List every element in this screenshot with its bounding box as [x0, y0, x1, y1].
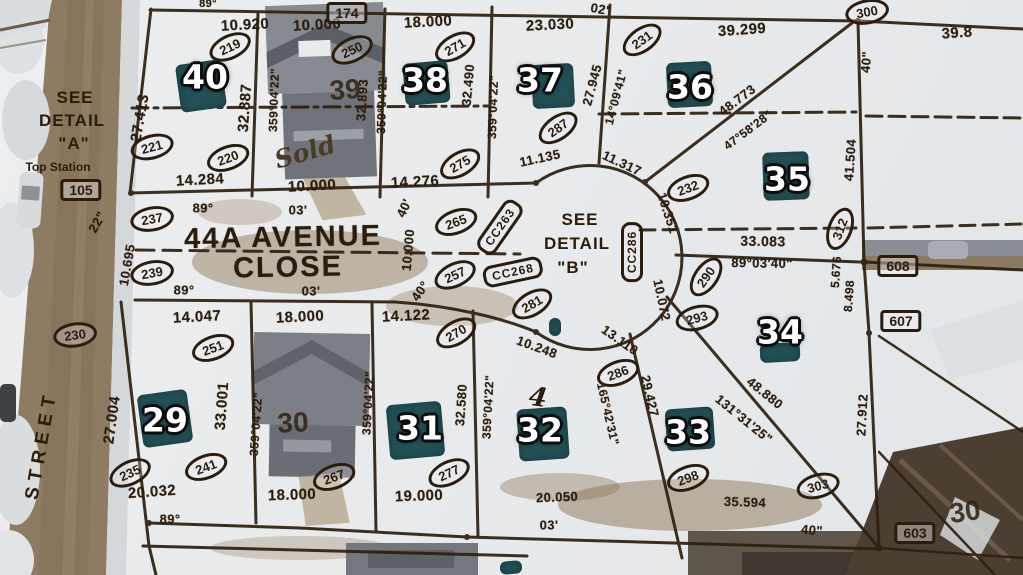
teal-marker-patch — [499, 560, 522, 575]
see-detail-b-line2: DETAIL — [544, 234, 610, 254]
boxed-point-tag: 174 — [326, 2, 367, 24]
boxed-point-tag: 105 — [60, 179, 101, 201]
dimension-label: 40" — [800, 522, 823, 539]
teal-marker-patch — [549, 318, 561, 336]
dimension-label: 359°04'22" — [359, 371, 376, 436]
dimension-label: 89° — [199, 0, 217, 10]
circled-point-tag: 230 — [52, 320, 99, 351]
dimension-label: 33.001 — [212, 381, 232, 430]
lot-number-badge: 35 — [764, 160, 810, 199]
circled-point-tag: 298 — [663, 459, 713, 497]
dimension-label: 23.030 — [525, 15, 574, 35]
dimension-label: 359°04'22" — [247, 392, 265, 457]
dimension-label: 03' — [302, 284, 321, 299]
top-station-note: Top Station — [25, 160, 90, 174]
dimension-label: 8.498 — [841, 280, 857, 313]
dimension-label: 11.135 — [518, 146, 562, 169]
dimension-label: 39.299 — [717, 20, 766, 40]
lot-number-badge: 29 — [142, 401, 188, 440]
circled-point-tag: 312 — [821, 204, 859, 254]
dimension-label: 33.083 — [740, 233, 786, 250]
dimension-label: 40° — [408, 278, 432, 304]
dimension-label: 10.920 — [220, 15, 269, 35]
cc-monument-tag: CC268 — [481, 255, 545, 289]
dimension-label: 02' — [589, 0, 610, 18]
dimension-label: 359°04'22" — [374, 70, 390, 135]
dimension-label: 41.504 — [841, 138, 859, 181]
dimension-label: 10.000 — [399, 228, 418, 271]
dimension-label: 14.284 — [175, 170, 224, 190]
dimension-label: 10.072 — [650, 278, 673, 322]
dimension-label: 27.912 — [853, 394, 870, 437]
see-detail-b-line1: SEE — [561, 210, 598, 230]
dimension-label: 14.276 — [390, 172, 439, 192]
see-detail-b-line3: "B" — [557, 258, 588, 278]
dimension-label: 13.110 — [599, 322, 642, 358]
dimension-label: 10.000 — [287, 176, 336, 196]
lot-number-badge: 38 — [402, 61, 448, 100]
dimension-label: 32.490 — [459, 63, 478, 106]
dimension-label: 32.580 — [452, 383, 470, 426]
lot-number-badge: 37 — [517, 61, 563, 100]
roof-lot-number: 39 — [328, 73, 361, 107]
dimension-label: 18.000 — [403, 12, 452, 32]
see-detail-a-line2: DETAIL — [39, 111, 105, 131]
see-detail-a-line3: "A" — [58, 134, 89, 154]
dimension-label: 03' — [289, 203, 308, 218]
roof-lot-number: 30 — [947, 494, 982, 530]
dimension-label: 19.000 — [395, 487, 444, 506]
dimension-label: 27.945 — [579, 63, 604, 108]
circled-point-tag: 267 — [309, 458, 359, 496]
dimension-label: 18.000 — [268, 486, 317, 505]
dimension-label: 359°04'22" — [479, 375, 496, 440]
dimension-label: 39.8 — [941, 23, 973, 42]
lot-number-badge: 36 — [667, 68, 713, 107]
aerial-survey-map: 89°10.92010.00018.00023.03002'39.29939.8… — [0, 0, 1023, 575]
circled-point-tag: 250 — [327, 29, 377, 70]
boxed-point-tag: 608 — [877, 255, 918, 277]
circled-point-tag: 251 — [188, 329, 238, 367]
dimension-label: 48.880 — [744, 374, 786, 412]
circled-point-tag: 290 — [683, 252, 729, 302]
roof-lot-number: 30 — [277, 406, 310, 440]
circled-point-tag: 241 — [181, 448, 231, 486]
see-detail-a-line1: SEE — [56, 88, 93, 108]
dimension-label: 40" — [858, 50, 875, 73]
dimension-label: 35.594 — [724, 494, 767, 510]
circled-point-tag: 239 — [128, 257, 175, 289]
circled-point-tag: 287 — [533, 105, 583, 151]
lot-number-badge: 34 — [757, 313, 803, 352]
dimension-label: 14°09'41" — [602, 68, 630, 127]
dimension-label: 89°03'40" — [731, 255, 793, 271]
boxed-point-tag: 603 — [894, 522, 935, 544]
dimension-label: 27.004 — [100, 395, 124, 445]
lot-number-badge: 31 — [397, 409, 443, 448]
dimension-label: 20.050 — [536, 489, 579, 505]
dimension-label: 03' — [540, 518, 559, 533]
annotation-layer: 89°10.92010.00018.00023.03002'39.29939.8… — [0, 0, 1023, 575]
dimension-label: 89° — [174, 283, 195, 298]
lot-number-badge: 40 — [182, 58, 228, 97]
dimension-label: 5.676 — [828, 256, 844, 289]
dimension-label: 14.122 — [381, 306, 430, 326]
dimension-label: 40' — [393, 196, 415, 219]
cc-monument-tag: CC263 — [474, 196, 527, 258]
circled-point-tag: 303 — [794, 468, 843, 503]
cc-monument-tag: CC286 — [621, 222, 643, 282]
dimension-label: 89° — [160, 512, 181, 527]
circled-point-tag: 237 — [128, 203, 175, 235]
lot-number-badge: 33 — [665, 413, 711, 452]
dimension-label: 32.887 — [235, 83, 255, 132]
boxed-point-tag: 607 — [880, 310, 921, 332]
street-name-line2: CLOSE — [233, 251, 343, 286]
dimension-label: 359°04'22" — [266, 68, 282, 133]
lot-number-badge: 32 — [517, 411, 563, 450]
dimension-label: 11.317 — [600, 147, 644, 178]
circled-point-tag: 275 — [435, 142, 485, 186]
circled-point-tag: 270 — [431, 311, 481, 355]
circled-point-tag: 257 — [430, 254, 480, 295]
dimension-label: 10.248 — [515, 333, 560, 362]
dimension-label: 20.032 — [127, 482, 176, 502]
dimension-label: 165°42'31" — [594, 381, 622, 447]
circled-point-tag: 293 — [673, 300, 722, 335]
circled-point-tag: 231 — [617, 17, 667, 63]
dimension-label: 89° — [193, 201, 214, 216]
dimension-label: 48.773 — [716, 81, 759, 118]
dimension-label: 18.000 — [275, 307, 324, 327]
dimension-label: 29.427 — [638, 374, 662, 418]
circled-point-tag: 265 — [431, 203, 481, 241]
circled-point-tag: 300 — [843, 0, 890, 28]
dimension-label: 359°04'22" — [485, 75, 501, 140]
dimension-label: 14.047 — [172, 307, 221, 327]
dimension-label: 22" — [85, 209, 109, 235]
